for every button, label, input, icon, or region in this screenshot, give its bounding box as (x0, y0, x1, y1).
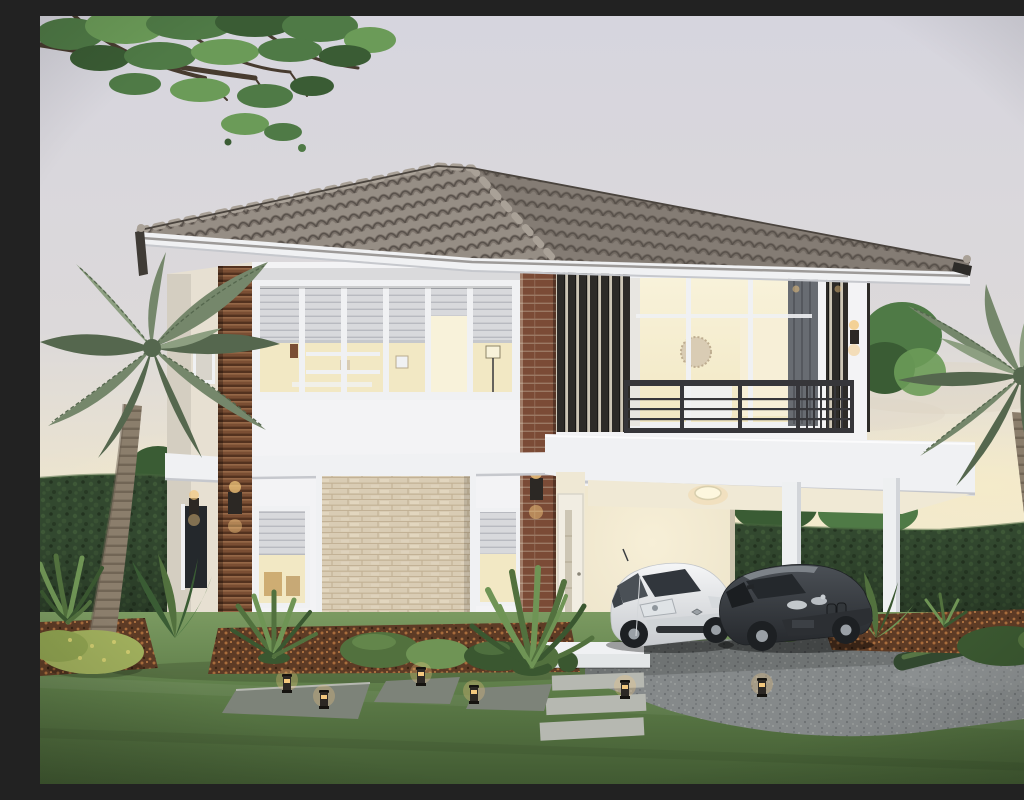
scene-canvas (40, 16, 1024, 784)
house-exterior-rendering (40, 16, 1024, 784)
vignette-overlay (40, 16, 1024, 784)
